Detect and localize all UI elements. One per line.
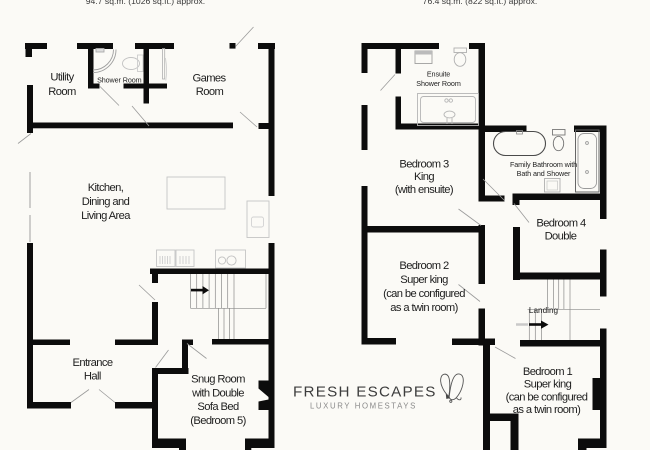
svg-text:Double: Double [545, 231, 577, 243]
svg-text:(Bedroom 5): (Bedroom 5) [190, 415, 246, 427]
svg-text:Room: Room [196, 86, 224, 98]
svg-text:Snug Room: Snug Room [191, 374, 245, 386]
svg-text:with Double: with Double [191, 387, 244, 399]
svg-text:(with ensuite): (with ensuite) [395, 184, 454, 196]
svg-text:Utility: Utility [50, 72, 74, 84]
svg-text:Shower Room: Shower Room [97, 76, 142, 85]
svg-text:as a twin room): as a twin room) [390, 302, 458, 314]
svg-text:Bedroom 1: Bedroom 1 [523, 366, 573, 378]
svg-text:94.7 sq.m. (1026 sq.ft.) appro: 94.7 sq.m. (1026 sq.ft.) approx. [86, 0, 205, 6]
svg-text:Room: Room [48, 86, 76, 98]
svg-text:Bath and Shower: Bath and Shower [517, 169, 571, 178]
svg-text:Shower Room: Shower Room [416, 79, 461, 88]
svg-text:Bedroom 3: Bedroom 3 [399, 159, 449, 171]
svg-text:Games: Games [192, 73, 226, 85]
svg-text:Super king: Super king [400, 274, 448, 286]
svg-text:Sofa Bed: Sofa Bed [197, 401, 239, 413]
svg-text:FRESH ESCAPES: FRESH ESCAPES [293, 384, 437, 401]
svg-text:Entrance: Entrance [73, 357, 113, 369]
svg-text:76.4 sq.m. (822 sq.ft.) approx: 76.4 sq.m. (822 sq.ft.) approx. [423, 0, 538, 6]
svg-text:Kitchen,: Kitchen, [88, 182, 124, 194]
svg-text:(can be configured: (can be configured [383, 288, 465, 300]
svg-text:Landing: Landing [529, 306, 559, 315]
svg-text:Living Area: Living Area [81, 210, 131, 222]
svg-text:(can be configured: (can be configured [506, 391, 588, 403]
svg-text:Ensuite: Ensuite [427, 70, 450, 79]
svg-text:Bedroom 2: Bedroom 2 [399, 260, 449, 272]
svg-text:as a twin room): as a twin room) [513, 404, 581, 416]
svg-text:Hall: Hall [84, 371, 101, 383]
svg-text:LUXURY HOMESTAYS: LUXURY HOMESTAYS [310, 402, 417, 411]
svg-text:King: King [414, 171, 434, 183]
svg-text:Bedroom 4: Bedroom 4 [536, 217, 586, 229]
svg-text:Dining and: Dining and [82, 196, 130, 208]
svg-text:Family Bathroom with: Family Bathroom with [510, 160, 577, 169]
svg-text:Super king: Super king [524, 379, 572, 391]
